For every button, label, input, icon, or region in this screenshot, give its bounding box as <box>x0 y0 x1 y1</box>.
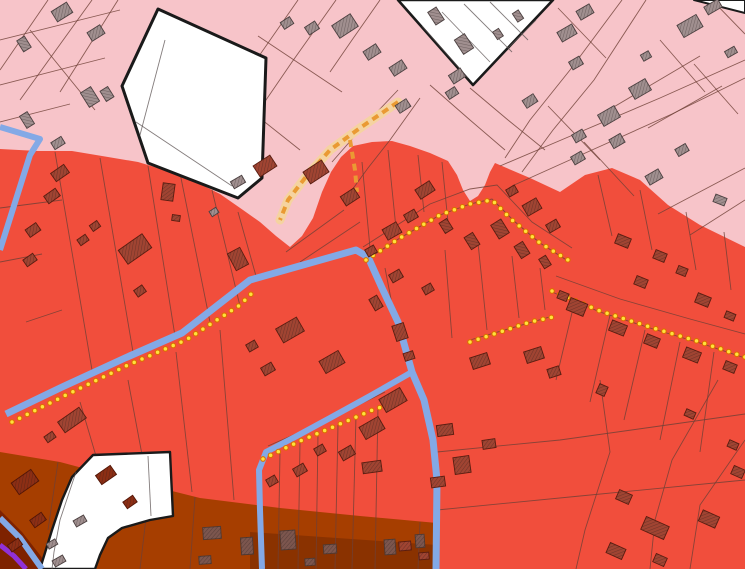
building-footprint <box>323 544 337 554</box>
building-footprint <box>172 214 181 221</box>
building-footprint <box>161 183 175 202</box>
building-footprint <box>399 541 412 551</box>
building-footprint <box>362 460 382 474</box>
building-footprint <box>305 558 315 566</box>
building-footprint <box>436 423 453 436</box>
building-footprint <box>482 439 496 450</box>
building-footprint <box>453 455 471 474</box>
building-footprint <box>203 526 222 539</box>
building-footprint <box>415 534 425 548</box>
building-footprint <box>240 537 253 555</box>
map-viewport[interactable] <box>0 0 745 569</box>
map-canvas[interactable] <box>0 0 745 569</box>
building-footprint <box>280 530 296 550</box>
building-footprint <box>430 476 445 488</box>
building-footprint <box>199 556 212 565</box>
building-footprint <box>384 539 396 555</box>
building-footprint <box>419 552 430 560</box>
